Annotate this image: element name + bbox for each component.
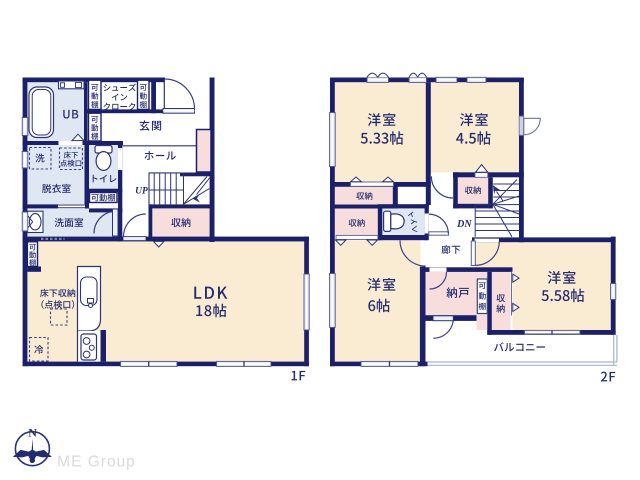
svg-text:DN: DN bbox=[456, 219, 472, 230]
svg-text:N: N bbox=[28, 426, 37, 440]
svg-text:UP: UP bbox=[135, 187, 148, 197]
svg-text:ME Group: ME Group bbox=[57, 454, 136, 471]
